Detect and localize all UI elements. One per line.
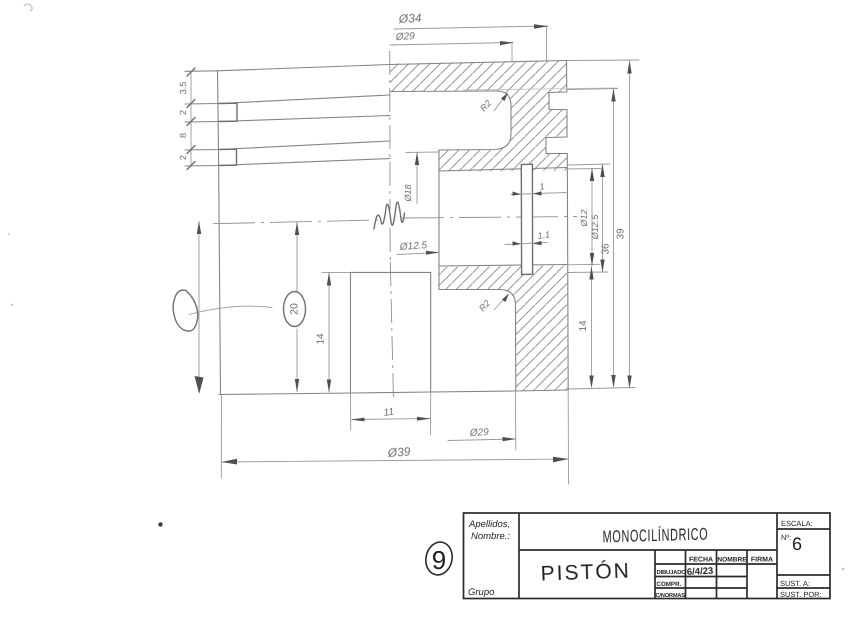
svg-text:FIRMA: FIRMA	[751, 557, 773, 564]
svg-text:2: 2	[178, 155, 188, 160]
svg-text:NOMBRE: NOMBRE	[717, 557, 747, 564]
svg-text:Ø12: Ø12	[579, 209, 589, 227]
svg-text:14: 14	[578, 320, 589, 332]
svg-text:Ø12.5: Ø12.5	[398, 240, 427, 253]
svg-text:MONOCILÍNDRICO: MONOCILÍNDRICO	[603, 525, 709, 547]
svg-text:SUST. A:: SUST. A:	[780, 579, 810, 588]
svg-text:9: 9	[432, 545, 446, 575]
svg-text:8: 8	[178, 133, 188, 138]
svg-text:DIBUJADO: DIBUJADO	[657, 569, 687, 576]
svg-text:Ø39: Ø39	[386, 444, 411, 460]
svg-text:Nº:: Nº:	[781, 533, 791, 542]
svg-text:Ø18: Ø18	[403, 184, 413, 202]
svg-text:FECHA: FECHA	[689, 557, 713, 564]
svg-text:Apellidos,: Apellidos,	[468, 519, 510, 530]
svg-text:Ø29: Ø29	[395, 31, 416, 43]
svg-text:SUST. POR:: SUST. POR:	[780, 590, 822, 599]
svg-text:PISTÓN: PISTÓN	[540, 558, 631, 585]
svg-text:COMPR.: COMPR.	[657, 581, 682, 588]
svg-text:3.5: 3.5	[178, 82, 188, 95]
svg-text:1.1: 1.1	[537, 229, 551, 241]
svg-text:Ø34: Ø34	[397, 11, 422, 26]
svg-text:14: 14	[316, 333, 327, 345]
svg-text:Grupo: Grupo	[468, 587, 494, 598]
svg-text:20: 20	[288, 303, 300, 315]
svg-text:Nombre.:: Nombre.:	[471, 531, 510, 542]
svg-text:6/4/23: 6/4/23	[687, 566, 714, 578]
svg-text:39: 39	[616, 228, 627, 240]
svg-text:Ø29: Ø29	[469, 427, 490, 439]
svg-text:36: 36	[601, 243, 612, 255]
svg-text:Ø12.5: Ø12.5	[590, 214, 600, 241]
svg-text:C/NORMAS: C/NORMAS	[656, 592, 686, 599]
svg-text:6: 6	[792, 534, 802, 554]
svg-text:11: 11	[383, 407, 395, 419]
svg-text:2: 2	[178, 110, 188, 115]
svg-text:ESCALA:: ESCALA:	[781, 519, 813, 528]
